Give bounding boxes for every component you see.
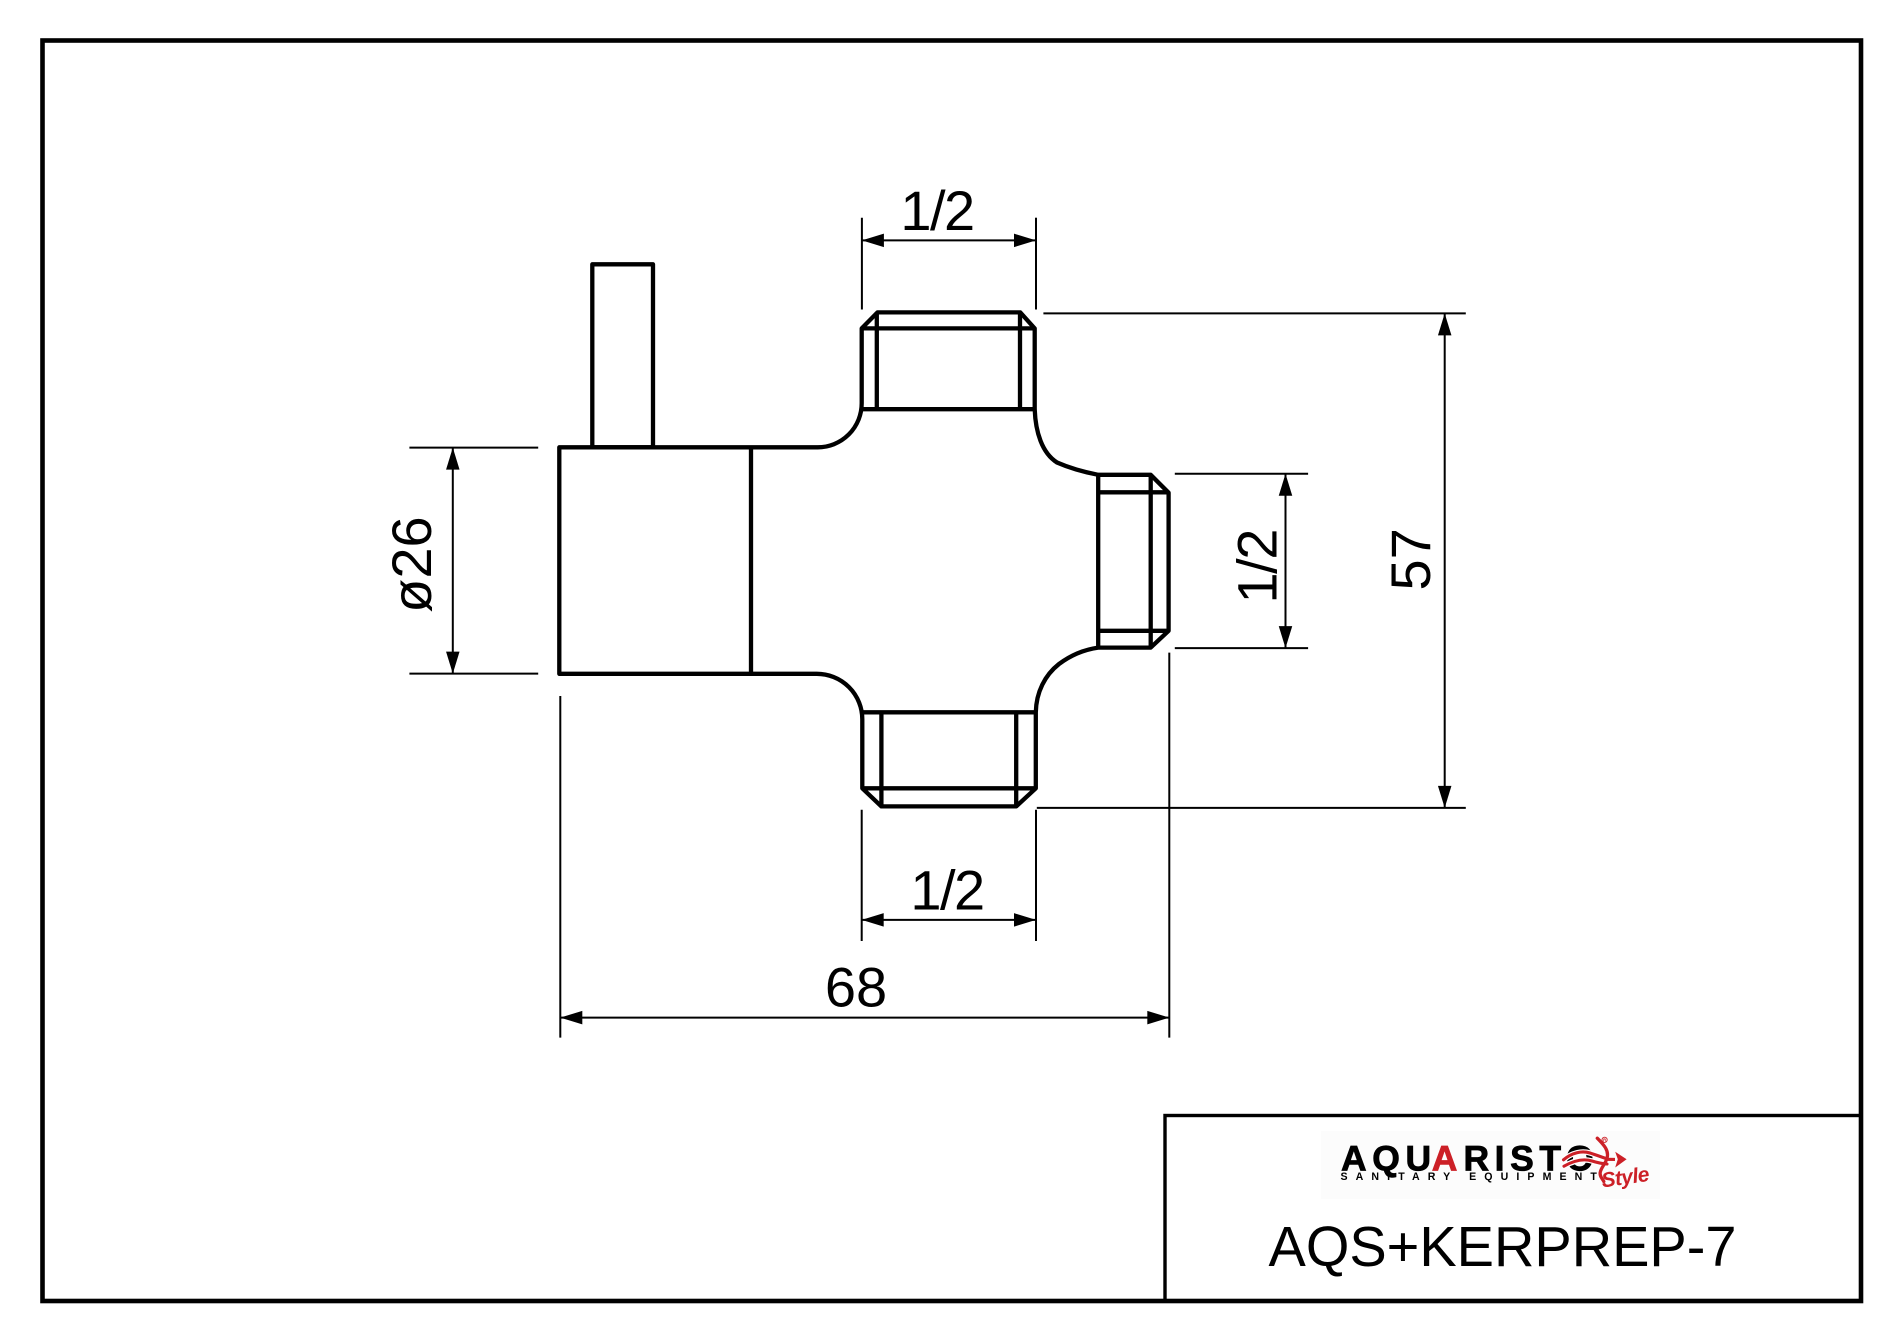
svg-text:SANITARY EQUIPMENT: SANITARY EQUIPMENT	[1341, 1171, 1606, 1183]
svg-text:1/2: 1/2	[1225, 530, 1288, 603]
svg-text:1/2: 1/2	[910, 859, 983, 922]
svg-text:1/2: 1/2	[900, 179, 973, 242]
svg-text:R: R	[1603, 1138, 1606, 1143]
svg-text:57: 57	[1379, 528, 1442, 590]
svg-text:68: 68	[825, 956, 887, 1019]
svg-text:AQS+KERPREP-7: AQS+KERPREP-7	[1269, 1215, 1737, 1278]
svg-text:ø26: ø26	[380, 516, 443, 613]
